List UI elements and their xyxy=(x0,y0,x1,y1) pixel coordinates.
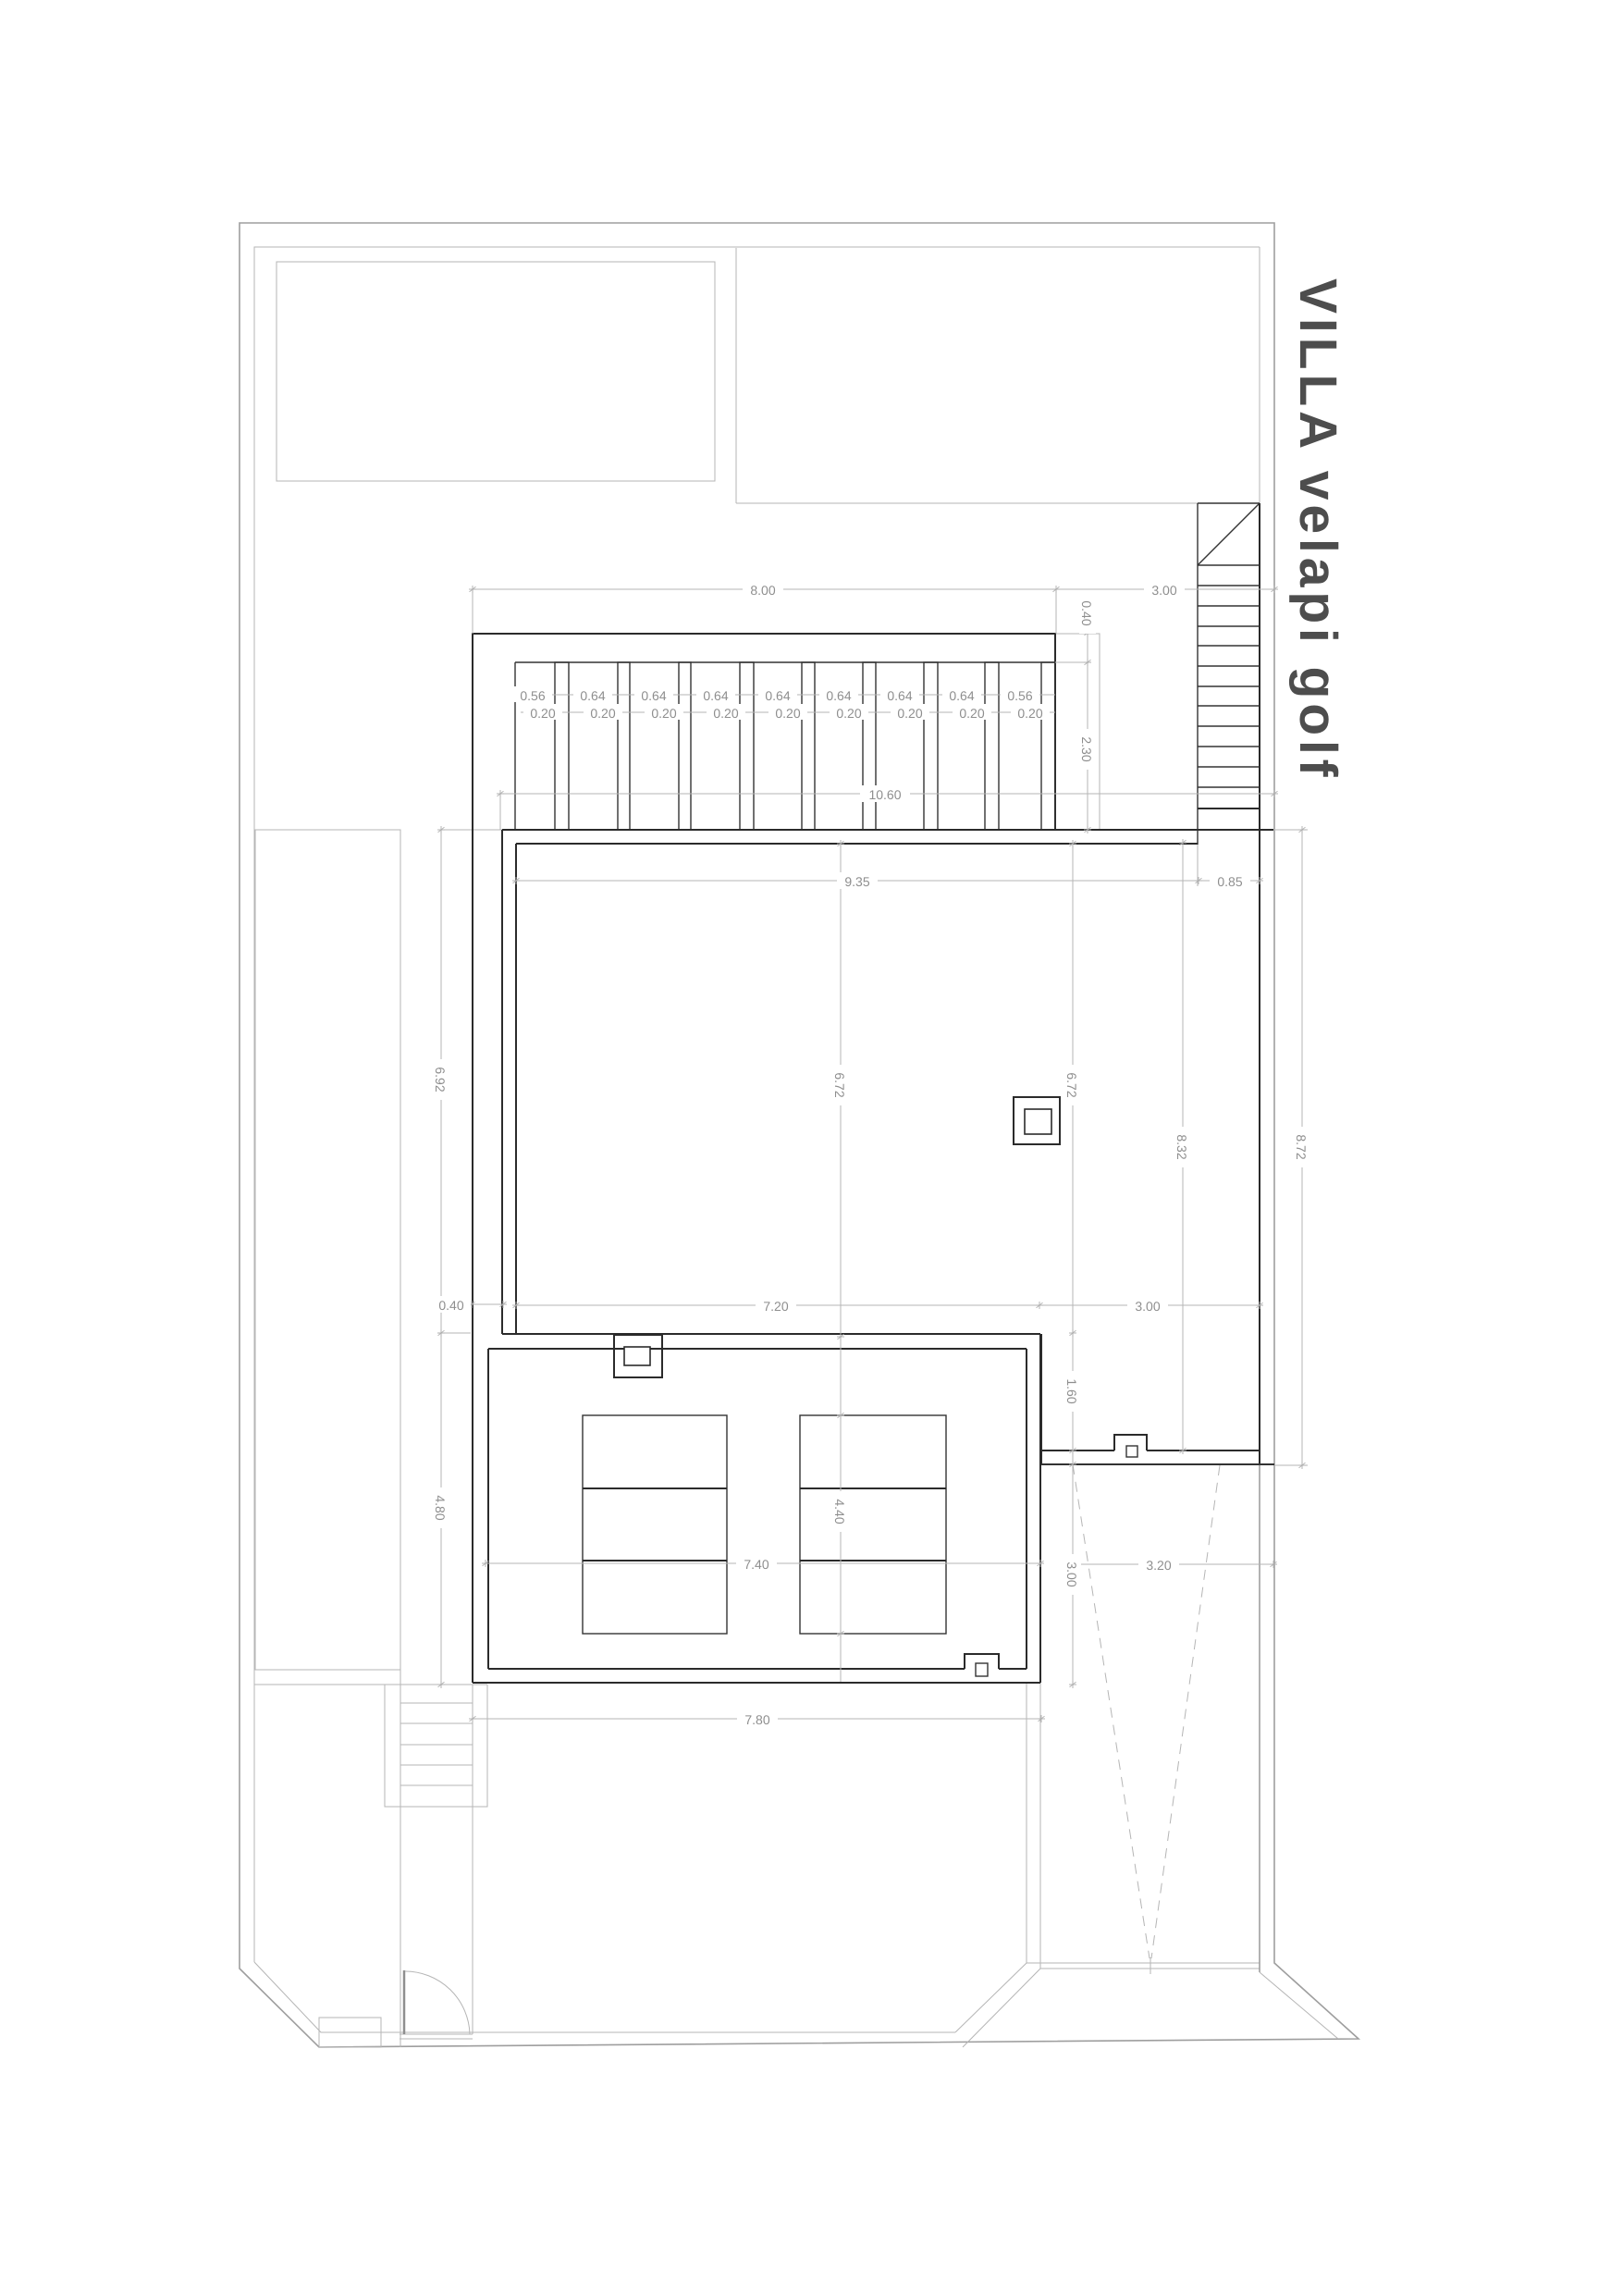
svg-text:0.56: 0.56 xyxy=(1007,688,1032,703)
svg-text:2.30: 2.30 xyxy=(1079,736,1094,761)
svg-text:6.92: 6.92 xyxy=(433,1067,448,1092)
svg-text:3.20: 3.20 xyxy=(1146,1558,1171,1573)
svg-text:0.64: 0.64 xyxy=(703,688,728,703)
svg-text:0.20: 0.20 xyxy=(775,706,800,721)
svg-text:3.00: 3.00 xyxy=(1135,1299,1160,1314)
svg-text:0.40: 0.40 xyxy=(1079,600,1094,625)
svg-text:0.64: 0.64 xyxy=(641,688,666,703)
svg-text:0.64: 0.64 xyxy=(949,688,974,703)
svg-text:0.20: 0.20 xyxy=(836,706,861,721)
svg-text:0.64: 0.64 xyxy=(887,688,912,703)
svg-text:3.00: 3.00 xyxy=(1151,583,1176,598)
svg-text:0.40: 0.40 xyxy=(438,1298,463,1313)
svg-text:7.40: 7.40 xyxy=(744,1557,768,1572)
svg-text:6.72: 6.72 xyxy=(832,1072,847,1097)
svg-text:4.40: 4.40 xyxy=(832,1499,847,1524)
svg-text:0.20: 0.20 xyxy=(651,706,676,721)
svg-text:0.20: 0.20 xyxy=(897,706,922,721)
svg-text:0.56: 0.56 xyxy=(520,688,545,703)
svg-text:0.85: 0.85 xyxy=(1217,874,1242,889)
svg-text:9.35: 9.35 xyxy=(844,874,869,889)
svg-text:6.72: 6.72 xyxy=(1064,1072,1079,1097)
svg-text:1.60: 1.60 xyxy=(1064,1378,1079,1403)
svg-text:4.80: 4.80 xyxy=(433,1495,448,1520)
svg-text:0.20: 0.20 xyxy=(530,706,555,721)
svg-text:0.20: 0.20 xyxy=(590,706,615,721)
svg-text:7.20: 7.20 xyxy=(763,1299,788,1314)
svg-text:0.64: 0.64 xyxy=(826,688,851,703)
svg-text:0.64: 0.64 xyxy=(765,688,790,703)
svg-text:10.60: 10.60 xyxy=(868,787,901,802)
svg-text:8.32: 8.32 xyxy=(1174,1134,1189,1159)
svg-text:7.80: 7.80 xyxy=(744,1712,769,1727)
svg-text:0.20: 0.20 xyxy=(1017,706,1042,721)
svg-text:0.20: 0.20 xyxy=(713,706,738,721)
svg-text:3.00: 3.00 xyxy=(1064,1562,1079,1586)
svg-text:0.20: 0.20 xyxy=(959,706,984,721)
svg-text:8.72: 8.72 xyxy=(1294,1134,1309,1159)
svg-text:8.00: 8.00 xyxy=(750,583,775,598)
svg-text:VILLA velapi golf: VILLA velapi golf xyxy=(1288,278,1347,782)
svg-text:0.64: 0.64 xyxy=(580,688,605,703)
